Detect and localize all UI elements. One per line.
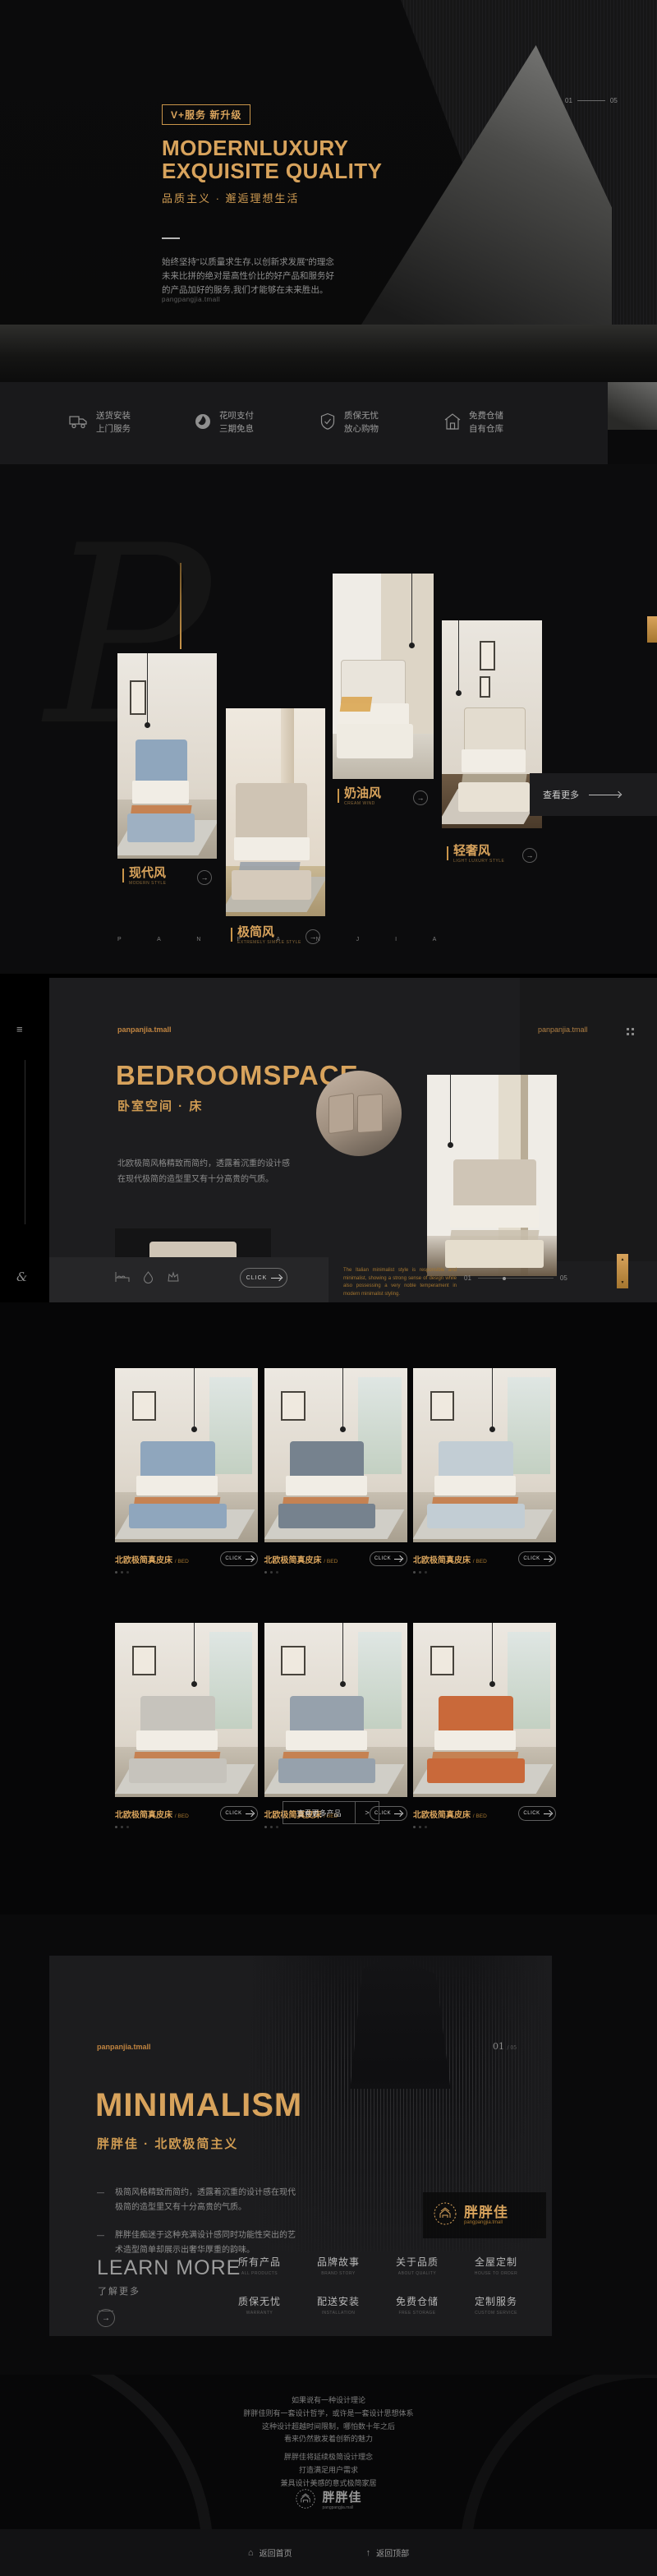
- ampersand-mark: &: [16, 1270, 27, 1284]
- space-paragraph-line2: 在现代极简的造型里又有十分高贵的气质。: [117, 1172, 290, 1187]
- service-line2: 上门服务: [96, 423, 131, 436]
- footer-link-label: 配送安装: [309, 2294, 368, 2308]
- footer-link[interactable]: 所有产品 ALL PRODUCTS: [230, 2255, 289, 2276]
- more-products-button[interactable]: 查看更多产品 >: [283, 1801, 379, 1824]
- product-click-button[interactable]: CLICK: [518, 1551, 556, 1566]
- pager-current: 01: [565, 97, 572, 104]
- click-label: CLICK: [225, 1811, 241, 1816]
- service-line2: 放心购物: [344, 423, 379, 436]
- product-suffix: / BED: [175, 1559, 189, 1564]
- feature-icons: [115, 1271, 180, 1288]
- footer-line: 看来仍然散发着创新的魅力: [0, 2433, 657, 2446]
- footer-line: 胖胖佳则有一套设计哲学，或许是一套设计思想体系: [0, 2408, 657, 2421]
- carousel-dots[interactable]: [413, 1826, 416, 1828]
- up-arrow-icon: ↑: [366, 2548, 371, 2558]
- arrow-icon: [544, 1813, 551, 1814]
- footer-link-sublabel: WARRANTY: [230, 2311, 289, 2316]
- style-label-modern[interactable]: 现代风 MODERN STYLE: [122, 867, 166, 886]
- footer-link-label: 全屋定制: [466, 2255, 526, 2269]
- space-brand-small-right: panpanjia.tmall: [538, 1025, 588, 1034]
- bedroom-space-section: ≡ & panpanjia.tmall panpanjia.tmall BEDR…: [0, 974, 657, 1302]
- services-bar: 送货安装 上门服务 花呗支付 三期免息: [0, 382, 608, 464]
- space-paragraph-line1: 北欧极简风格精致而简约，透露着沉重的设计感: [117, 1156, 290, 1172]
- click-button[interactable]: CLICK: [240, 1268, 287, 1288]
- product-card[interactable]: 北欧极简真皮床 / BED CLICK: [264, 1368, 407, 1574]
- brand-logo-sub: pangpangjia.tmall: [464, 2220, 508, 2225]
- footer-section: 如果说有一种设计理论胖胖佳则有一套设计哲学，或许是一套设计思想体系这种设计超越时…: [0, 2375, 657, 2576]
- service-huabei: 花呗支付 三期免息: [194, 410, 283, 436]
- back-home-label: 返回首页: [260, 2546, 292, 2559]
- arrow-icon: [271, 1278, 281, 1279]
- style-card-cream-photo[interactable]: [333, 574, 434, 779]
- space-pagination: 01 05: [464, 1274, 567, 1282]
- footer-link-sublabel: BRAND STORY: [309, 2271, 368, 2276]
- huabei-icon: [194, 412, 212, 435]
- style-arrow-button[interactable]: →: [197, 870, 212, 885]
- style-name-en: LIGHT LUXURY STYLE: [453, 859, 504, 864]
- footer-logo-name: 胖胖佳: [322, 2491, 361, 2505]
- arrow-icon: [246, 1559, 253, 1560]
- right-edge-gold-tab[interactable]: [647, 616, 657, 643]
- learn-more-subtitle: 了解更多: [98, 2284, 140, 2297]
- building-edge: [608, 382, 657, 430]
- click-label: CLICK: [246, 1275, 268, 1281]
- more-products-label: 查看更多产品: [283, 1808, 355, 1818]
- footer-logo-sub: pangpangjia.mall: [322, 2505, 361, 2510]
- click-label: CLICK: [374, 1556, 391, 1561]
- next-arrow-button[interactable]: →: [97, 2309, 115, 2327]
- service-line1: 质保无忧: [344, 410, 379, 423]
- arrow-icon: [394, 1813, 402, 1814]
- hero-section: 01 05 V+服务 新升级 MODERNLUXURY EXQUISITE QU…: [0, 0, 657, 382]
- bedroom-styles-section: P 卧室风格 BEDROOM STYLE 现代风 MODERN STYLE →: [0, 464, 657, 974]
- bed-icon: [115, 1271, 130, 1288]
- space-brand-small: panpanjia.tmall: [117, 1025, 172, 1034]
- hero-paragraph: 始终坚持"以质量求生存,以创新求发展"的理念未来比拼的绝对是高性价比的好产品和服…: [162, 256, 342, 298]
- pager-current: 01: [464, 1274, 471, 1282]
- gold-vertical-line: [180, 563, 181, 649]
- hero-title: MODERNLUXURY EXQUISITE QUALITY: [162, 136, 383, 182]
- product-card[interactable]: 北欧极简真皮床 / BED CLICK: [413, 1368, 556, 1574]
- footer-link[interactable]: 质保无忧 WARRANTY: [230, 2294, 289, 2316]
- product-suffix: / BED: [473, 1559, 487, 1564]
- truck-icon: [69, 412, 89, 435]
- hero-ground: [0, 325, 657, 382]
- style-label-cream[interactable]: 奶油风 CREAM WIND: [338, 787, 381, 806]
- carousel-dots[interactable]: [115, 1826, 117, 1828]
- footer-link-sublabel: INSTALLATION: [309, 2311, 368, 2316]
- style-card-simple-photo[interactable]: [226, 708, 325, 916]
- crown-icon: [167, 1271, 180, 1288]
- footer-link[interactable]: 关于品质 ABOUT QUALITY: [388, 2255, 447, 2276]
- menu-icon[interactable]: ≡: [16, 1023, 22, 1035]
- style-label-luxury[interactable]: 轻奢风 LIGHT LUXURY STYLE: [447, 845, 504, 864]
- footer-link-label: 免费仓储: [388, 2294, 447, 2308]
- products-section: 北欧极简真皮床 / BED CLICK: [0, 1302, 657, 1915]
- min-pagination: 01 / 05: [493, 2041, 517, 2052]
- bullet-paragraph: 胖胖佳痴迷于这种充满设计感同时功能性突出的艺术造型简单却展示出奢华厚重的韵味。: [97, 2228, 302, 2258]
- hero-title-line2: EXQUISITE QUALITY: [162, 159, 383, 182]
- footer-link[interactable]: 免费仓储 FREE STORAGE: [388, 2294, 447, 2316]
- minimalism-subtitle: 胖胖佳 · 北欧极简主义: [97, 2135, 238, 2152]
- learn-more-dash: [99, 2311, 113, 2311]
- brand-logo-name: 胖胖佳: [464, 2205, 508, 2221]
- carousel-dots[interactable]: [115, 1571, 117, 1574]
- minimalism-title: MINIMALISM: [95, 2087, 302, 2124]
- learn-more-title: LEARN MORE: [97, 2256, 241, 2280]
- slider-down-icon[interactable]: ▼: [621, 1280, 625, 1285]
- pager-line: [577, 100, 605, 101]
- minimalism-bullets: 极简风格精致而简约，透露着沉重的设计感在现代极简的造型里又有十分高贵的气质。胖胖…: [97, 2186, 302, 2258]
- min-brand-small: panpanjia.tmall: [97, 2043, 151, 2051]
- carousel-dots[interactable]: [264, 1826, 267, 1828]
- rail-line: [25, 1060, 25, 1224]
- arrow-right-icon: →: [417, 794, 425, 802]
- footer-link-label: 关于品质: [388, 2255, 447, 2269]
- long-arrow-icon: [589, 795, 620, 795]
- gold-note: The Italian minimalist style is responsi…: [343, 1267, 457, 1298]
- click-label: CLICK: [523, 1556, 540, 1561]
- service-line2: 自有仓库: [469, 423, 503, 436]
- pager-total: 05: [610, 97, 618, 104]
- product-suffix: / BED: [175, 1813, 189, 1819]
- footer-statement-2: 胖胖佳将延续极简设计理念打造满足用户需求兼具设计美感的意式极简家居: [0, 2451, 657, 2490]
- arrow-right-icon: →: [102, 2314, 110, 2323]
- product-photo: [115, 1623, 258, 1797]
- style-card-luxury-photo[interactable]: [442, 620, 542, 828]
- hero-divider: [162, 237, 180, 239]
- service-warranty: 质保无忧 放心购物: [319, 410, 407, 436]
- product-title: 北欧极简真皮床: [413, 1811, 471, 1820]
- product-click-button[interactable]: CLICK: [220, 1806, 258, 1821]
- style-arrow-button[interactable]: →: [413, 790, 428, 805]
- product-photo: [264, 1623, 407, 1797]
- promo-badge: V+服务 新升级: [162, 104, 250, 125]
- product-suffix: / BED: [324, 1559, 338, 1564]
- service-line1: 送货安装: [96, 410, 131, 423]
- arrow-icon: [544, 1559, 551, 1560]
- gold-slider-control[interactable]: ▲ ▼: [617, 1254, 628, 1288]
- footer-link[interactable]: 全屋定制 HOUSE TO ORDER: [466, 2255, 526, 2276]
- style-name-en: MODERN STYLE: [129, 881, 166, 886]
- service-delivery: 送货安装 上门服务: [69, 410, 158, 436]
- product-click-button[interactable]: CLICK: [220, 1551, 258, 1566]
- back-top-button[interactable]: ↑ 返回顶部: [366, 2546, 410, 2559]
- brand-logo-badge: 胖胖佳 pangpangjia.tmall: [423, 2192, 546, 2238]
- gold-bar: [338, 789, 339, 803]
- footer-link-sublabel: FREE STORAGE: [388, 2311, 447, 2316]
- view-more-button[interactable]: 查看更多: [530, 773, 657, 816]
- hero-pagination: 01 05: [565, 97, 618, 104]
- product-photo: [413, 1623, 556, 1797]
- space-title: BEDROOMSPACE: [116, 1060, 359, 1091]
- style-name-en: CREAM WIND: [344, 801, 381, 806]
- product-title: 北欧极简真皮床: [413, 1556, 471, 1565]
- footer-line: 如果说有一种设计理论: [0, 2394, 657, 2408]
- back-home-button[interactable]: ⌂ 返回首页: [248, 2546, 292, 2559]
- footer-line: 这种设计超越时间限制，哪怕数十年之后: [0, 2421, 657, 2434]
- footer-line: 打造满足用户需求: [0, 2464, 657, 2477]
- style-card-modern-photo[interactable]: [117, 653, 217, 859]
- carousel-dots[interactable]: [264, 1571, 267, 1574]
- grid-dots-icon[interactable]: [627, 1028, 629, 1030]
- product-photo: [115, 1368, 258, 1542]
- service-line2: 三期免息: [219, 423, 254, 436]
- product-title: 北欧极简真皮床: [115, 1556, 172, 1565]
- carousel-dots[interactable]: [413, 1571, 416, 1574]
- back-top-label: 返回顶部: [376, 2546, 409, 2559]
- style-name: 奶油风: [344, 787, 381, 801]
- space-photo-right: [427, 1075, 557, 1276]
- brand-emblem-icon: [295, 2488, 316, 2514]
- footer-link-sublabel: HOUSE TO ORDER: [466, 2271, 526, 2276]
- footer-bar: ⌂ 返回首页 ↑ 返回顶部: [0, 2529, 657, 2576]
- product-click-button[interactable]: CLICK: [370, 1551, 407, 1566]
- product-click-button[interactable]: CLICK: [518, 1806, 556, 1821]
- footer-statement-1: 如果说有一种设计理论胖胖佳则有一套设计哲学，或许是一套设计思想体系这种设计超越时…: [0, 2394, 657, 2446]
- service-storage: 免费仓储 自有仓库: [443, 410, 532, 436]
- space-paragraph: 北欧极简风格精致而简约，透露着沉重的设计感 在现代极简的造型里又有十分高贵的气质…: [117, 1156, 290, 1187]
- product-title: 北欧极简真皮床: [115, 1811, 172, 1820]
- arrow-right-icon: →: [526, 851, 534, 859]
- hero-brand-small: pangpangjia.tmall: [162, 296, 220, 303]
- arrow-icon: [394, 1559, 402, 1560]
- product-grid: 北欧极简真皮床 / BED CLICK: [115, 1368, 556, 1828]
- space-subtitle: 卧室空间 · 床: [117, 1097, 203, 1114]
- pager-total: 05: [560, 1274, 567, 1282]
- pager-current: 01: [493, 2041, 504, 2052]
- product-suffix: / BED: [473, 1813, 487, 1819]
- brand-emblem-icon: [433, 2201, 457, 2230]
- slider-up-icon[interactable]: ▲: [621, 1257, 625, 1262]
- style-name: 轻奢风: [453, 845, 504, 859]
- headboard-circle-photo: [316, 1071, 402, 1156]
- hero-title-line1: MODERNLUXURY: [162, 136, 383, 159]
- service-line1: 免费仓储: [469, 410, 503, 423]
- product-photo: [413, 1368, 556, 1542]
- brand-letters-row: P A N P A N J I A: [117, 937, 544, 942]
- shield-check-icon: [319, 412, 337, 435]
- footer-link-sublabel: ABOUT QUALITY: [388, 2271, 447, 2276]
- hero-subtitle: 品质主义 · 邂逅理想生活: [162, 190, 300, 205]
- product-photo: [264, 1368, 407, 1542]
- pager-line: [478, 1278, 554, 1279]
- footer-link-label: 质保无忧: [230, 2294, 289, 2308]
- footer-link[interactable]: 定制服务 CUSTOM SERVICE: [466, 2294, 526, 2316]
- landing-page: 01 05 V+服务 新升级 MODERNLUXURY EXQUISITE QU…: [0, 0, 657, 2576]
- footer-link[interactable]: 配送安装 INSTALLATION: [309, 2294, 368, 2316]
- style-name: 现代风: [129, 867, 166, 881]
- arrow-right-icon: →: [201, 873, 209, 882]
- footer-link-sublabel: ALL PRODUCTS: [230, 2271, 289, 2276]
- product-card[interactable]: 北欧极简真皮床 / BED CLICK: [115, 1623, 258, 1828]
- style-arrow-button[interactable]: →: [522, 848, 537, 863]
- pager-total: / 05: [508, 2045, 517, 2051]
- view-more-label: 查看更多: [543, 788, 579, 801]
- product-card[interactable]: 北欧极简真皮床 / BED CLICK: [264, 1623, 407, 1828]
- bullet-paragraph: 极简风格精致而简约，透露着沉重的设计感在现代极简的造型里又有十分高贵的气质。: [97, 2186, 302, 2215]
- footer-link-label: 所有产品: [230, 2255, 289, 2269]
- footer-links: 所有产品 ALL PRODUCTS 品牌故事 BRAND STORY 关于品质 …: [230, 2255, 526, 2316]
- footer-logo: 胖胖佳 pangpangjia.mall: [0, 2488, 657, 2514]
- product-card[interactable]: 北欧极简真皮床 / BED CLICK: [413, 1623, 556, 1828]
- footer-link-label: 定制服务: [466, 2294, 526, 2308]
- product-title: 北欧极简真皮床: [264, 1556, 322, 1565]
- service-line1: 花呗支付: [219, 410, 254, 423]
- product-card[interactable]: 北欧极简真皮床 / BED CLICK: [115, 1368, 258, 1574]
- gold-bar: [122, 869, 124, 882]
- gold-bar: [447, 846, 448, 860]
- footer-link[interactable]: 品牌故事 BRAND STORY: [309, 2255, 368, 2276]
- droplet-icon: [143, 1271, 154, 1288]
- chevron-right-icon: >: [356, 1809, 379, 1817]
- footer-link-label: 品牌故事: [309, 2255, 368, 2269]
- click-label: CLICK: [225, 1556, 241, 1561]
- footer-line: 胖胖佳将延续极简设计理念: [0, 2451, 657, 2464]
- click-label: CLICK: [523, 1811, 540, 1816]
- arrow-icon: [246, 1813, 253, 1814]
- home-icon: ⌂: [248, 2548, 254, 2558]
- warehouse-icon: [443, 412, 462, 435]
- footer-link-sublabel: CUSTOM SERVICE: [466, 2311, 526, 2316]
